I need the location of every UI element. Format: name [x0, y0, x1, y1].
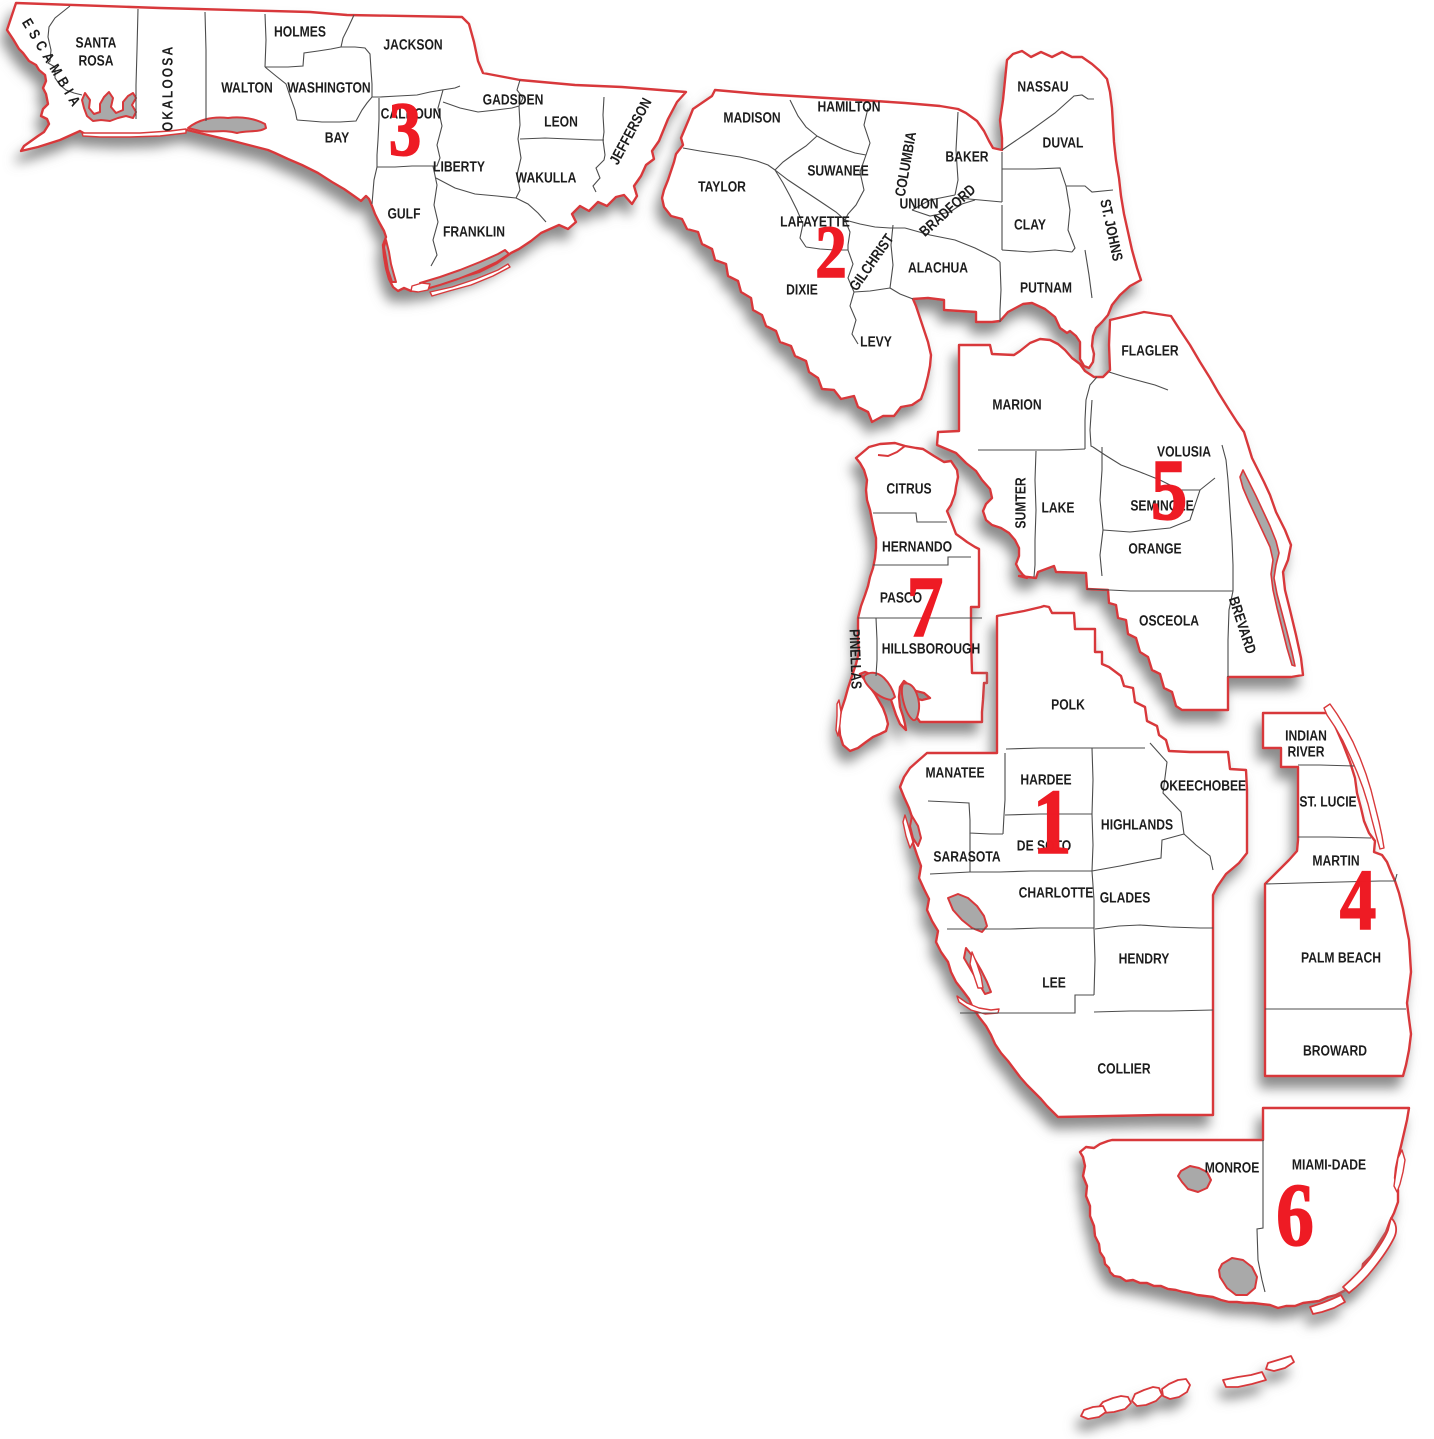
svg-text:7: 7 [907, 558, 944, 655]
svg-text:UNION: UNION [899, 197, 938, 213]
svg-text:INDIAN: INDIAN [1285, 729, 1327, 745]
svg-text:SUMTER: SUMTER [1014, 477, 1030, 528]
svg-text:6: 6 [1276, 1166, 1314, 1265]
svg-text:POLK: POLK [1051, 698, 1085, 714]
svg-text:PUTNAM: PUTNAM [1020, 281, 1072, 297]
svg-text:OSCEOLA: OSCEOLA [1139, 614, 1199, 630]
svg-text:FLAGLER: FLAGLER [1121, 344, 1179, 360]
svg-text:BAKER: BAKER [945, 150, 988, 166]
svg-text:NASSAU: NASSAU [1017, 80, 1068, 96]
svg-text:SANTA: SANTA [76, 36, 117, 52]
svg-text:COLLIER: COLLIER [1097, 1062, 1151, 1078]
svg-text:SUWANEE: SUWANEE [807, 164, 868, 180]
svg-text:MONROE: MONROE [1205, 1161, 1260, 1177]
svg-text:LEVY: LEVY [860, 335, 892, 351]
svg-text:CHARLOTTE: CHARLOTTE [1019, 886, 1094, 902]
svg-text:MANATEE: MANATEE [925, 766, 984, 782]
svg-text:LEE: LEE [1042, 976, 1066, 992]
svg-text:4: 4 [1340, 851, 1377, 948]
svg-text:ALACHUA: ALACHUA [908, 261, 968, 277]
svg-text:DUVAL: DUVAL [1043, 136, 1084, 152]
svg-text:SARASOTA: SARASOTA [933, 850, 1000, 866]
svg-text:HOLMES: HOLMES [274, 25, 326, 41]
svg-text:OKEECHOBEE: OKEECHOBEE [1160, 779, 1246, 795]
svg-text:HIGHLANDS: HIGHLANDS [1101, 818, 1173, 834]
svg-text:WAKULLA: WAKULLA [516, 171, 577, 187]
svg-text:HAMILTON: HAMILTON [818, 100, 881, 116]
svg-text:FRANKLIN: FRANKLIN [443, 225, 505, 241]
svg-text:BROWARD: BROWARD [1303, 1044, 1367, 1060]
svg-text:GULF: GULF [387, 207, 420, 223]
svg-text:MADISON: MADISON [723, 111, 780, 127]
svg-text:WASHINGTON: WASHINGTON [287, 81, 370, 97]
svg-text:PINELLAS: PINELLAS [845, 629, 863, 690]
svg-text:GADSDEN: GADSDEN [483, 93, 544, 109]
svg-text:5: 5 [1151, 441, 1188, 538]
svg-text:CLAY: CLAY [1014, 218, 1046, 234]
svg-text:DIXIE: DIXIE [786, 283, 818, 299]
svg-text:3: 3 [389, 86, 421, 172]
svg-text:2: 2 [815, 211, 847, 294]
svg-text:CITRUS: CITRUS [886, 482, 931, 498]
svg-text:LIBERTY: LIBERTY [433, 160, 485, 176]
svg-text:WALTON: WALTON [221, 81, 272, 97]
svg-text:OKALOOSA: OKALOOSA [161, 45, 177, 132]
svg-text:HERNANDO: HERNANDO [882, 540, 952, 556]
svg-text:RIVER: RIVER [1287, 745, 1324, 761]
svg-text:1: 1 [1032, 771, 1071, 874]
svg-text:ST. LUCIE: ST. LUCIE [1299, 795, 1356, 811]
svg-text:TAYLOR: TAYLOR [698, 180, 746, 196]
svg-text:JACKSON: JACKSON [383, 38, 442, 54]
svg-text:MARION: MARION [992, 398, 1041, 414]
svg-text:HENDRY: HENDRY [1119, 952, 1170, 968]
svg-text:GLADES: GLADES [1100, 891, 1151, 907]
svg-text:BAY: BAY [325, 131, 350, 147]
svg-text:ORANGE: ORANGE [1128, 542, 1181, 558]
svg-text:LEON: LEON [544, 115, 578, 131]
svg-text:LAKE: LAKE [1041, 501, 1074, 517]
svg-text:ROSA: ROSA [78, 54, 113, 70]
svg-text:PALM BEACH: PALM BEACH [1301, 951, 1381, 967]
